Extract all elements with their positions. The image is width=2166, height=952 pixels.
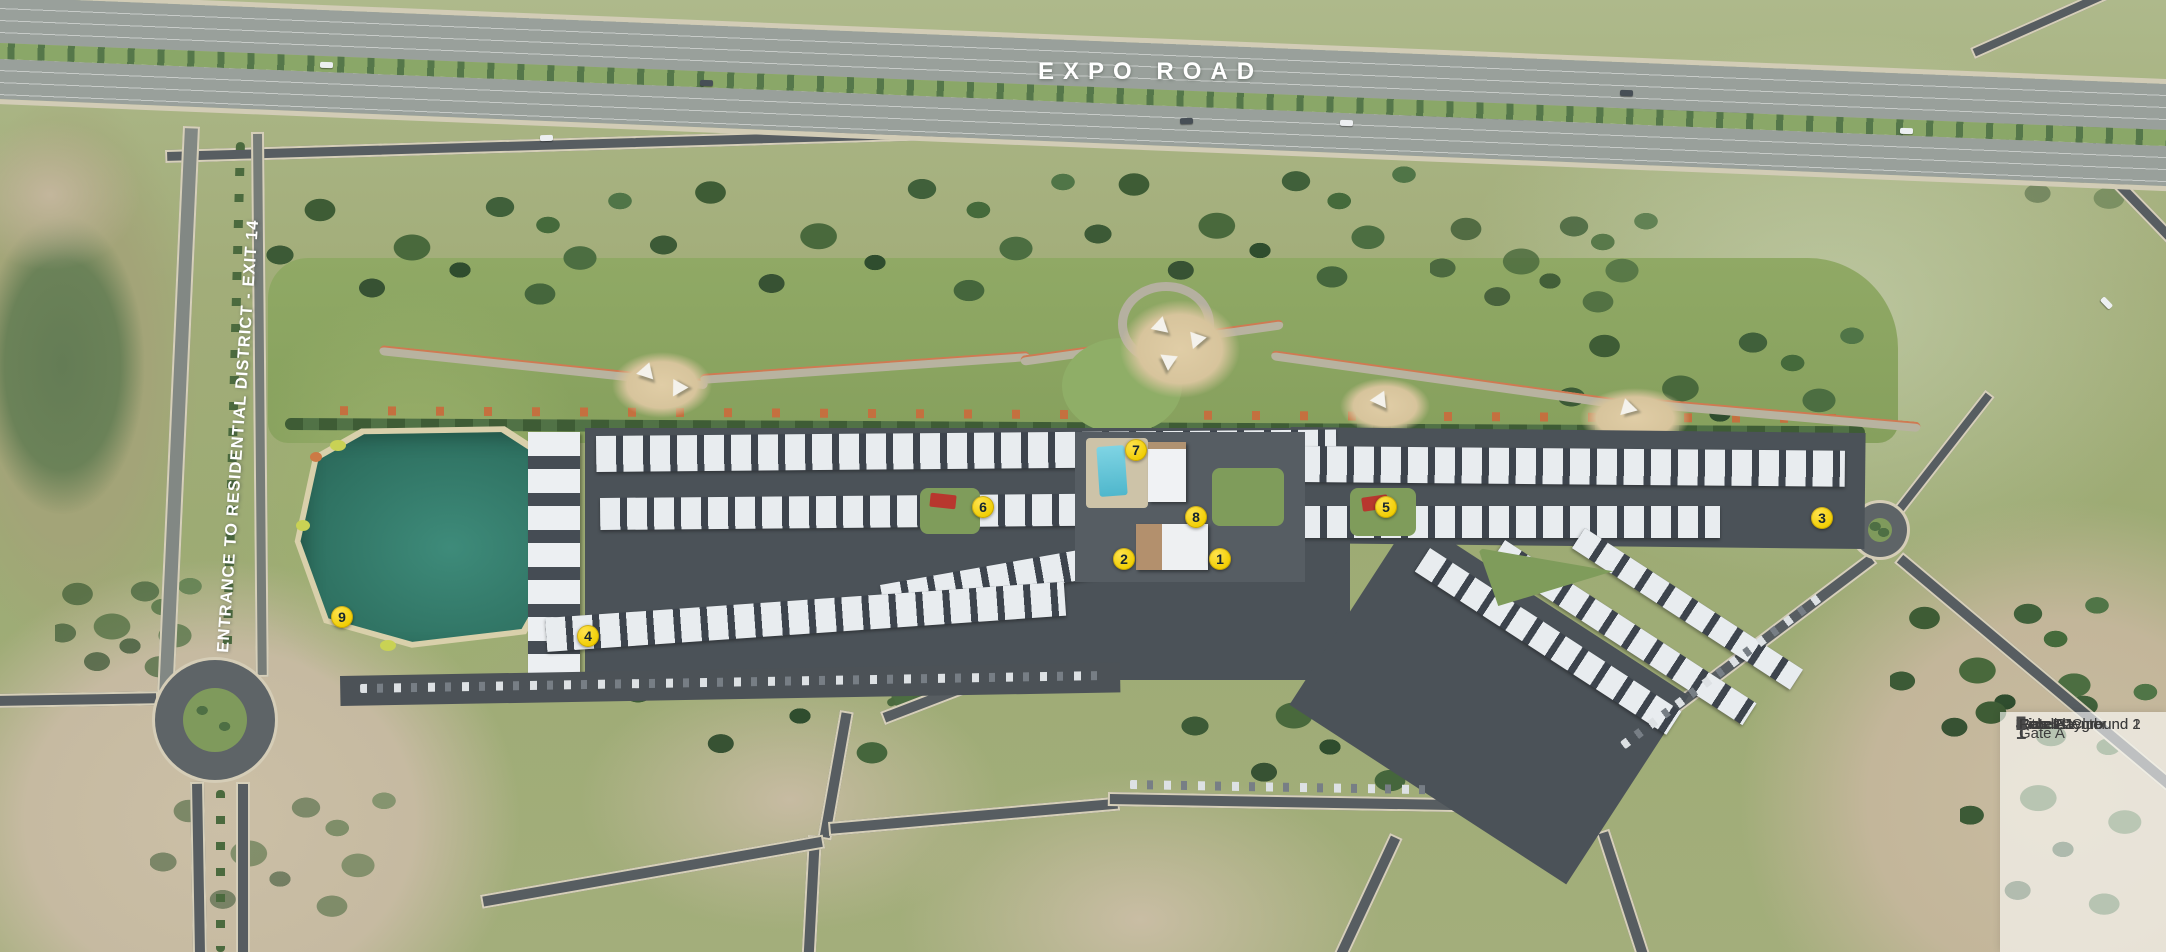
masterplan-map: EXPO ROAD ENTRANCE TO RESIDENTIAL DISTRI… [0, 0, 2166, 952]
marker-layer: 123456789 [0, 0, 2166, 952]
map-marker-7: 7 [1125, 439, 1147, 461]
map-marker-8: 8 [1185, 506, 1207, 528]
legend-panel: 1 Gate A 2 Gate B 3 Gate A1 4 Gate B1 5 … [2000, 712, 2166, 952]
map-marker-9: 9 [331, 606, 353, 628]
legend-label: Pond [2019, 716, 2054, 733]
legend-row: 9 Pond [2000, 712, 2010, 738]
map-marker-6: 6 [972, 496, 994, 518]
map-marker-2: 2 [1113, 548, 1135, 570]
map-marker-5: 5 [1375, 496, 1397, 518]
map-marker-3: 3 [1811, 507, 1833, 529]
map-marker-4: 4 [577, 625, 599, 647]
map-marker-1: 1 [1209, 548, 1231, 570]
